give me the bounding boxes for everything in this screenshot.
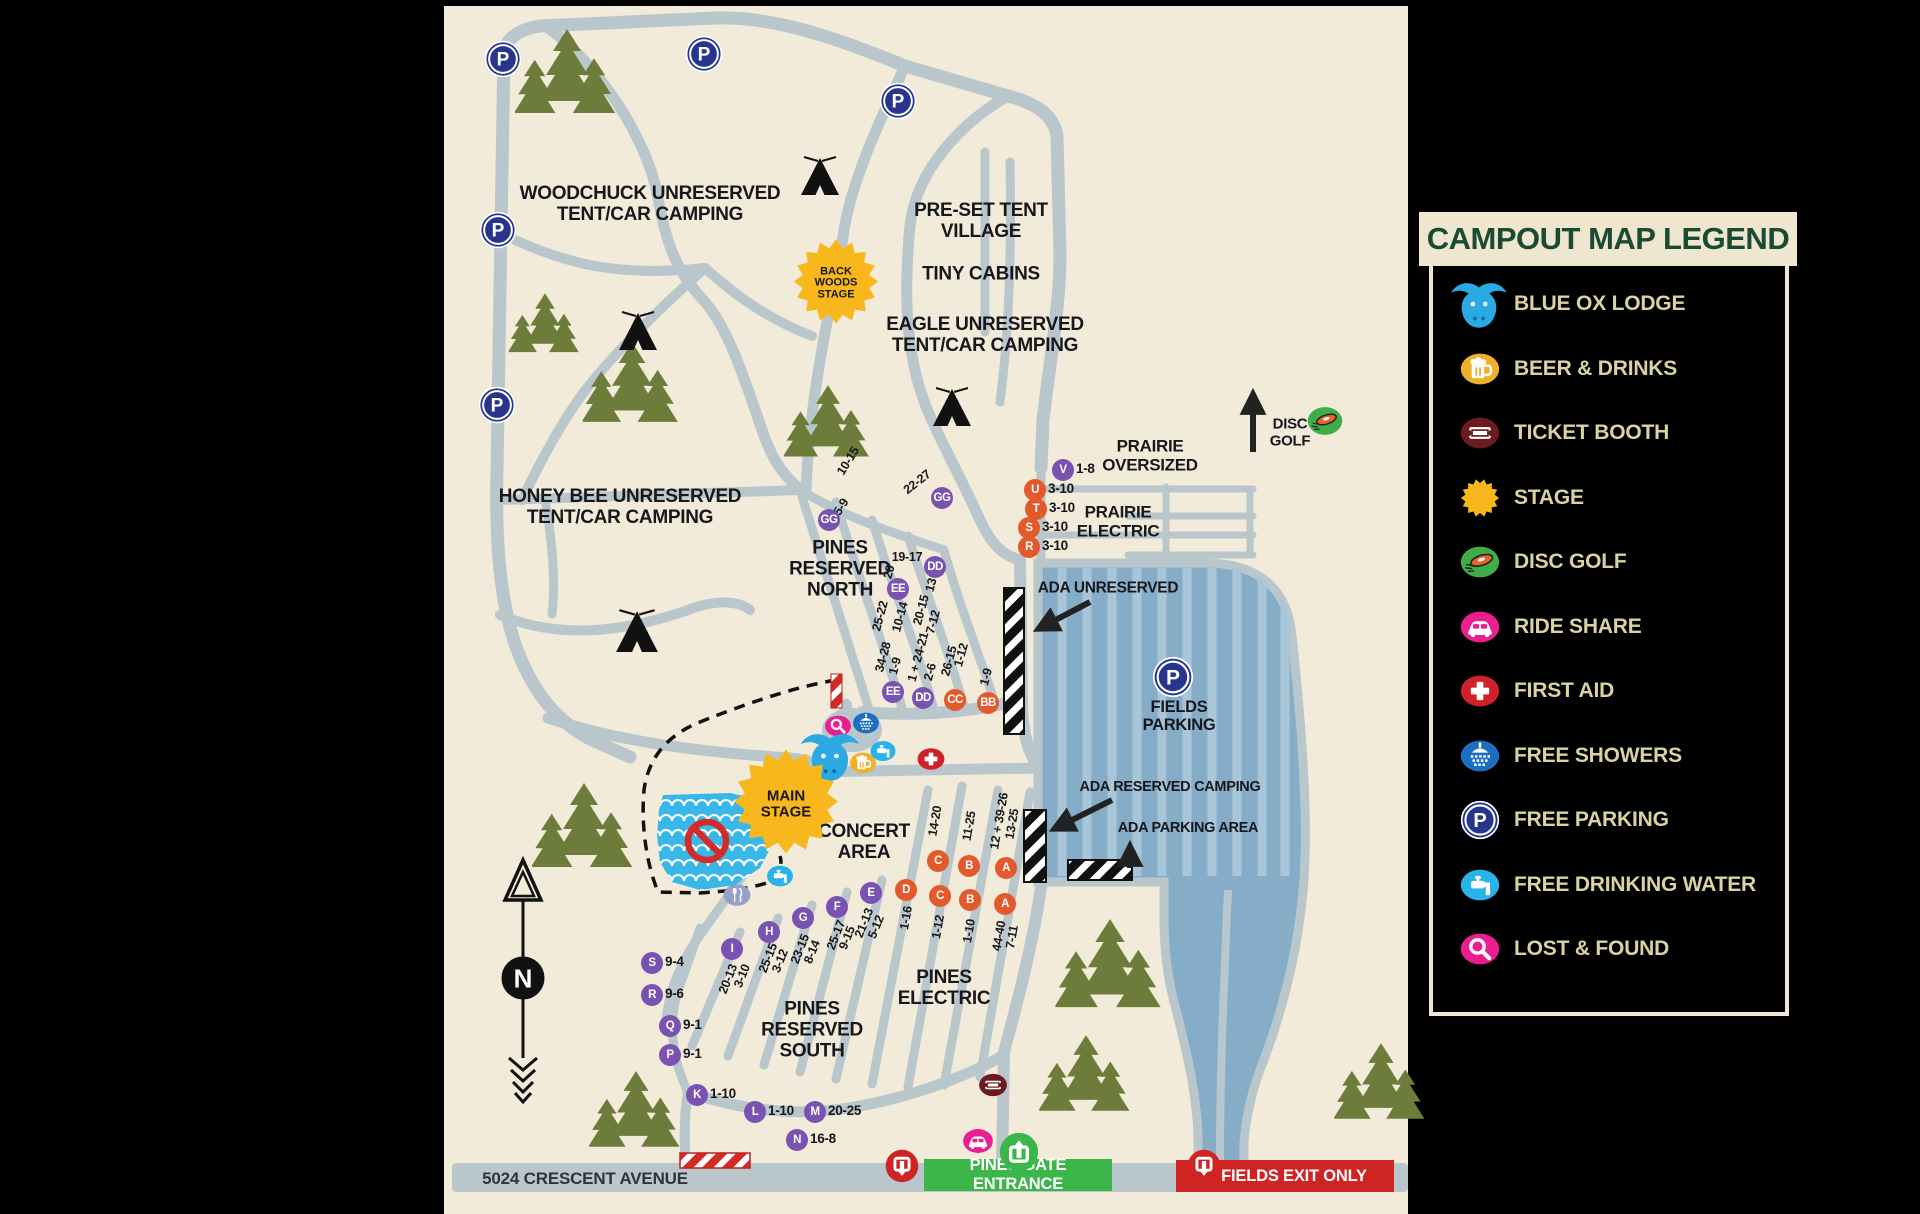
exit-icon [1187,1149,1221,1183]
site-marker-badge: V [1052,459,1074,481]
site-range-label: 1-9 [886,656,904,676]
site-marker-range: 1-10 [768,1103,794,1118]
water-icon [870,738,896,764]
ticket-icon [979,1071,1008,1100]
site-range-label: 10-14 [889,600,910,633]
site-marker-range: 9-1 [683,1017,702,1032]
legend-item-label: BEER & DRINKS [1514,357,1677,381]
legend-item-lost-found: LOST & FOUND [1432,917,1778,982]
free-parking-icon [1152,656,1194,698]
free-parking-icon [478,386,516,424]
legend-title: CAMPOUT MAP LEGEND [1419,212,1797,266]
legend-item-label: FREE DRINKING WATER [1514,873,1756,897]
first-aid-icon [917,745,945,773]
free-parking-icon [879,82,917,120]
legend-item-label: RIDE SHARE [1514,615,1642,639]
exit-icon [885,1149,919,1183]
site-marker-badge: GG [818,509,840,531]
site-marker-range: 3-10 [1048,481,1074,496]
free-parking-icon [484,40,522,78]
beer-icon [1446,349,1514,389]
site-marker-badge: DD [924,556,946,578]
site-marker-range: 1-8 [1076,461,1095,476]
site-marker-badge: C [927,850,949,872]
site-marker-badge: P [659,1044,681,1066]
water-icon [1446,865,1514,905]
site-marker-badge: B [958,855,980,877]
site-marker-range: 3-10 [1049,500,1075,515]
legend-item-ride-share: RIDE SHARE [1432,595,1778,660]
legend-item-beer-drinks: BEER & DRINKS [1432,337,1778,402]
site-range-label: 1-12 [929,914,947,940]
site-marker-range: 1-10 [710,1086,736,1101]
site-marker-badge: CC [944,689,966,711]
site-marker-badge: M [804,1101,826,1123]
site-marker-badge: BB [977,692,999,714]
site-range-label: 13 [923,577,940,593]
street-label: 5024 CRESCENT AVENUE [482,1169,688,1189]
site-marker-badge: N [786,1129,808,1151]
site-marker-range: 9-4 [665,954,684,969]
site-range-label: 10-15 [834,444,862,477]
site-marker-range: 3-10 [1042,519,1068,534]
legend-list: BLUE OX LODGEBEER & DRINKSTICKET BOOTHST… [1432,272,1778,982]
pines-reserved-south-label: PINES RESERVED SOUTH [761,1000,863,1063]
site-range-label: 7-11 [1003,924,1021,949]
ada-unreserved-label: ADA UNRESERVED [1038,579,1179,596]
legend-item-label: STAGE [1514,486,1584,510]
legend-item-stage: STAGE [1432,466,1778,531]
site-marker-range: 9-1 [683,1046,702,1061]
water-icon [767,863,794,890]
site-range-label: 19-17 [892,550,922,564]
disc-golf-icon [1446,542,1514,582]
site-range-label: 1-16 [897,905,915,931]
tiny-cabins-label: TINY CABINS [922,265,1040,286]
site-range-label: 2-6 [921,662,939,682]
entrance-icon [999,1132,1039,1172]
disc-golf-label: DISC GOLF [1270,417,1310,450]
campout-map-screenshot: 5024 CRESCENT AVENUE N PINES GATE ENTRAN… [0,0,1920,1214]
prairie-electric-label: PRAIRIE ELECTRIC [1077,503,1160,540]
free-parking-icon [685,35,723,73]
woodchuck-label: WOODCHUCK UNRESERVED TENT/CAR CAMPING [520,184,781,226]
legend-item-label: TICKET BOOTH [1514,421,1669,445]
shower-icon [1446,736,1514,776]
prairie-oversized-label: PRAIRIE OVERSIZED [1102,437,1198,474]
site-range-label: 22-27 [901,467,934,497]
legend-item-label: FREE PARKING [1514,808,1669,832]
ada-parking-area-label: ADA PARKING AREA [1118,821,1258,837]
site-range-label: 1-9 [977,667,995,687]
site-range-label: 1-10 [960,918,978,944]
site-marker-range: 3-10 [1042,538,1068,553]
site-marker-badge: S [641,952,663,974]
food-icon [723,881,751,909]
site-marker-badge: EE [882,681,904,703]
first-aid-icon [1446,671,1514,711]
blue-ox-icon [1446,279,1514,329]
lost-found-icon [1446,929,1514,969]
back-woods-stage-label: BACK WOODS STAGE [815,266,858,302]
site-marker-badge: F [826,896,848,918]
site-range-label: 11-25 [960,810,979,842]
site-marker-badge: DD [912,687,934,709]
pines-reserved-north-label: PINES RESERVED NORTH [789,539,891,602]
legend-item-free-showers: FREE SHOWERS [1432,724,1778,789]
fields-parking-label: FIELDS PARKING [1143,698,1216,734]
legend-item-disc-golf: DISC GOLF [1432,530,1778,595]
pines-electric-label: PINES ELECTRIC [898,968,991,1010]
site-marker-range: 20-25 [828,1103,861,1118]
compass-north-letter: N [514,964,533,995]
stage-icon [1446,478,1514,518]
main-stage-label: MAIN STAGE [761,788,812,820]
legend-item-ticket-booth: TICKET BOOTH [1432,401,1778,466]
parking-icon [1446,800,1514,840]
site-marker-range: 16-8 [810,1131,836,1146]
site-marker-badge: D [895,879,917,901]
ride-share-icon [1446,607,1514,647]
site-marker-badge: GG [931,487,953,509]
back-woods-stage: BACK WOODS STAGE [790,236,882,333]
site-marker-badge: L [744,1101,766,1123]
legend-item-blue-ox-lodge: BLUE OX LODGE [1432,272,1778,337]
site-marker-badge: E [860,882,882,904]
site-marker-badge: H [758,921,780,943]
eagle-label: EAGLE UNRESERVED TENT/CAR CAMPING [886,315,1084,357]
site-range-label: 25-22 [869,599,890,632]
site-marker-badge: R [1018,536,1040,558]
honey-bee-label: HONEY BEE UNRESERVED TENT/CAR CAMPING [499,487,741,529]
site-marker-badge: A [994,893,1016,915]
preset-tent-village-label: PRE-SET TENT VILLAGE [914,201,1048,243]
ride-share-icon [963,1126,994,1157]
legend-item-label: BLUE OX LODGE [1514,292,1685,316]
ada-reserved-camping-label: ADA RESERVED CAMPING [1080,780,1261,796]
site-marker-badge: EE [887,578,909,600]
free-parking-icon [479,211,517,249]
site-marker-badge: G [792,907,814,929]
site-marker-badge: Q [659,1015,681,1037]
site-marker-badge: B [959,889,981,911]
site-marker-range: 9-6 [665,986,684,1001]
legend-item-label: LOST & FOUND [1514,937,1669,961]
site-marker-badge: A [995,857,1017,879]
site-marker-badge: K [686,1084,708,1106]
site-range-label: 14-20 [925,805,944,837]
legend-item-free-drinking-water: FREE DRINKING WATER [1432,853,1778,918]
legend-item-label: FIRST AID [1514,679,1614,703]
legend-item-free-parking: FREE PARKING [1432,788,1778,853]
site-marker-badge: C [929,885,951,907]
legend-item-label: FREE SHOWERS [1514,744,1682,768]
site-marker-badge: R [641,984,663,1006]
legend-item-first-aid: FIRST AID [1432,659,1778,724]
ticket-icon [1446,413,1514,453]
main-stage: MAIN STAGE [730,746,842,863]
disc-golf-icon [1307,403,1343,439]
site-marker-badge: I [721,938,743,960]
legend-item-label: DISC GOLF [1514,550,1627,574]
